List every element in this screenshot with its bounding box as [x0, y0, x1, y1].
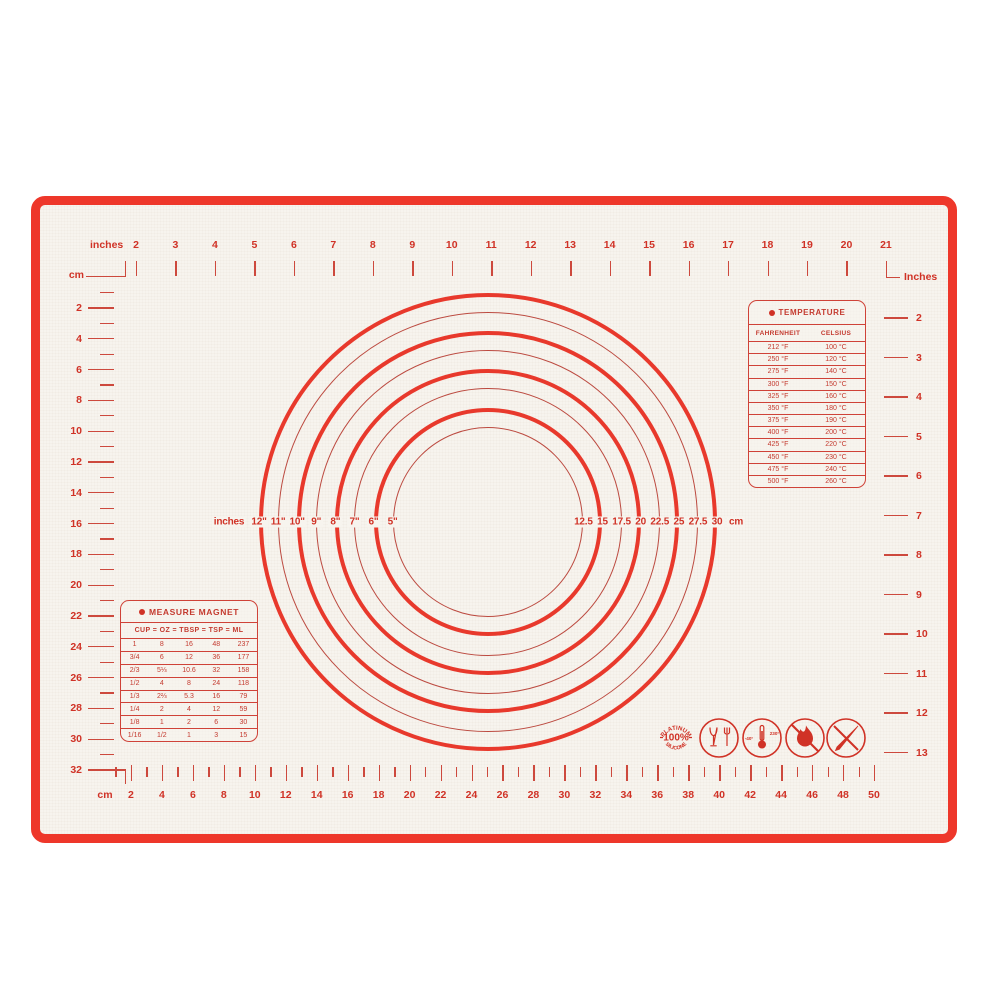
celsius-column-header: CELSIUS [807, 330, 865, 337]
measure-cell: 1/16 [121, 732, 148, 739]
measure-table-title: MEASURE MAGNET [121, 601, 257, 623]
temperature-table-header: FAHRENHEIT CELSIUS [749, 325, 865, 342]
pastry-mat: inches23456789101112131415161718192021cm… [31, 196, 957, 843]
temp-range-min-text: -40° [745, 736, 754, 741]
circle-cm-label: 22.5 [648, 517, 671, 528]
measure-cell: 177 [230, 654, 257, 661]
measure-row: 1/4241259 [121, 703, 257, 716]
measure-cell: 3/4 [121, 654, 148, 661]
measure-cell: 24 [203, 680, 230, 687]
temperature-cell: 200 °C [807, 429, 865, 436]
circle-cm-label: 27.5 [687, 517, 710, 528]
measure-cell: 1/2 [121, 680, 148, 687]
circle-inches-label: 11" [269, 517, 288, 528]
temperature-row: 375 °F190 °C [749, 415, 865, 427]
measure-cell: 8 [175, 680, 202, 687]
temperature-row: 425 °F220 °C [749, 439, 865, 451]
measure-cell: 118 [230, 680, 257, 687]
temperature-cell: 450 °F [749, 454, 807, 461]
pastry-mat-surface: inches23456789101112131415161718192021cm… [40, 205, 948, 834]
temperature-cell: 140 °C [807, 368, 865, 375]
measure-table-header: CUP = OZ = TBSP = TSP = ML [121, 623, 257, 639]
temperature-cell: 240 °C [807, 466, 865, 473]
temperature-conversion-table: TEMPERATURE FAHRENHEIT CELSIUS 212 °F100… [748, 300, 866, 488]
circle-inches-label: 7" [347, 517, 361, 528]
measure-cell: 158 [230, 667, 257, 674]
measure-table-title-text: MEASURE MAGNET [149, 607, 239, 617]
measure-cell: 16 [175, 641, 202, 648]
measure-conversion-table: MEASURE MAGNET CUP = OZ = TBSP = TSP = M… [120, 600, 258, 742]
measure-cell: 1/2 [148, 732, 175, 739]
measure-row: 181648237 [121, 639, 257, 652]
measure-cell: 59 [230, 706, 257, 713]
circle-inches-label: 5" [386, 517, 400, 528]
fahrenheit-column-header: FAHRENHEIT [749, 330, 807, 337]
temperature-row: 450 °F230 °C [749, 452, 865, 464]
red-dot-icon [769, 310, 775, 316]
circle-cm-label: 15 [595, 517, 610, 528]
measure-cell: 1/4 [121, 706, 148, 713]
temperature-cell: 400 °F [749, 429, 807, 436]
circle-cm-label: 25 [671, 517, 686, 528]
temperature-row: 350 °F180 °C [749, 403, 865, 415]
temperature-cell: 212 °F [749, 344, 807, 351]
temperature-row: 212 °F100 °C [749, 342, 865, 354]
measure-cell: 1 [148, 719, 175, 726]
temperature-cell: 325 °F [749, 393, 807, 400]
temperature-cell: 160 °C [807, 393, 865, 400]
temperature-cell: 475 °F [749, 466, 807, 473]
temperature-row: 300 °F150 °C [749, 379, 865, 391]
measure-cell: 1 [175, 732, 202, 739]
measure-cell: 3 [203, 732, 230, 739]
measure-cell: 2⅔ [148, 693, 175, 700]
product-photo: inches23456789101112131415161718192021cm… [0, 0, 1000, 1000]
temperature-cell: 250 °F [749, 356, 807, 363]
temp-range-max-text: 230° [770, 731, 780, 736]
measure-cell: 8 [148, 641, 175, 648]
temperature-row: 475 °F240 °C [749, 464, 865, 476]
temperature-table-title-text: TEMPERATURE [779, 308, 846, 317]
temperature-cell: 425 °F [749, 441, 807, 448]
red-dot-icon [139, 609, 145, 615]
temperature-row: 250 °F120 °C [749, 354, 865, 366]
circle-inches-label: 6" [367, 517, 381, 528]
measure-cell: 2/3 [121, 667, 148, 674]
temperature-row: 500 °F260 °C [749, 476, 865, 487]
temperature-cell: 180 °C [807, 405, 865, 412]
measure-cell: 79 [230, 693, 257, 700]
temperature-cell: 220 °C [807, 441, 865, 448]
measure-cell: 12 [175, 654, 202, 661]
circle-cm-label: 30 [710, 517, 725, 528]
measure-row: 1/812630 [121, 716, 257, 729]
temperature-cell: 500 °F [749, 478, 807, 485]
temperature-cell: 120 °C [807, 356, 865, 363]
temperature-table-title: TEMPERATURE [749, 301, 865, 325]
temperature-cell: 230 °C [807, 454, 865, 461]
circle-inches-label: 10" [288, 517, 307, 528]
measure-cell: 30 [230, 719, 257, 726]
platinum-silicone-badge: PLATINUM 100% SILICONE [654, 714, 698, 760]
circle-cm-label: 17.5 [610, 517, 633, 528]
measure-row: 1/24824118 [121, 678, 257, 691]
circle-inches-label: 12" [249, 517, 268, 528]
temperature-cell: 100 °C [807, 344, 865, 351]
measure-row: 3/461236177 [121, 652, 257, 665]
temperature-cell: 190 °C [807, 417, 865, 424]
measure-row: 1/161/21315 [121, 729, 257, 741]
circle-left-unit-label: inches [212, 517, 246, 528]
circle-inches-label: 8" [328, 517, 342, 528]
no-knife-icon [824, 714, 868, 760]
measure-cell: 6 [203, 719, 230, 726]
measure-cell: 12 [203, 706, 230, 713]
temperature-cell: 150 °C [807, 381, 865, 388]
circle-cm-label: 12.5 [572, 517, 595, 528]
circle-cm-label: 20 [633, 517, 648, 528]
measure-cell: 10.6 [175, 667, 202, 674]
temperature-cell: 350 °F [749, 405, 807, 412]
measure-cell: 2 [175, 719, 202, 726]
no-open-flame-icon [783, 714, 827, 760]
badge-center-text: 100% [663, 733, 689, 744]
measure-cell: 5.3 [175, 693, 202, 700]
measure-cell: 4 [175, 706, 202, 713]
circle-right-unit-label: cm [727, 517, 745, 528]
food-safe-glass-fork-icon [697, 714, 741, 760]
measure-cell: 16 [203, 693, 230, 700]
measure-cell: 48 [203, 641, 230, 648]
measure-cell: 5⅓ [148, 667, 175, 674]
temperature-cell: 375 °F [749, 417, 807, 424]
measure-cell: 32 [203, 667, 230, 674]
measure-cell: 237 [230, 641, 257, 648]
temperature-cell: 300 °F [749, 381, 807, 388]
temperature-cell: 260 °C [807, 478, 865, 485]
temperature-row: 400 °F200 °C [749, 427, 865, 439]
temperature-cell: 275 °F [749, 368, 807, 375]
measure-cell: 1 [121, 641, 148, 648]
temperature-row: 275 °F140 °C [749, 366, 865, 378]
measure-cell: 4 [148, 680, 175, 687]
measure-cell: 36 [203, 654, 230, 661]
measure-row: 1/32⅔5.31679 [121, 691, 257, 704]
measure-cell: 15 [230, 732, 257, 739]
measure-cell: 6 [148, 654, 175, 661]
measure-cell: 2 [148, 706, 175, 713]
circle-inches-label: 9" [309, 517, 323, 528]
temperature-range-icon: -40° 230° [740, 714, 784, 760]
temperature-row: 325 °F160 °C [749, 391, 865, 403]
measure-row: 2/35⅓10.632158 [121, 665, 257, 678]
measure-cell: 1/8 [121, 719, 148, 726]
measure-cell: 1/3 [121, 693, 148, 700]
